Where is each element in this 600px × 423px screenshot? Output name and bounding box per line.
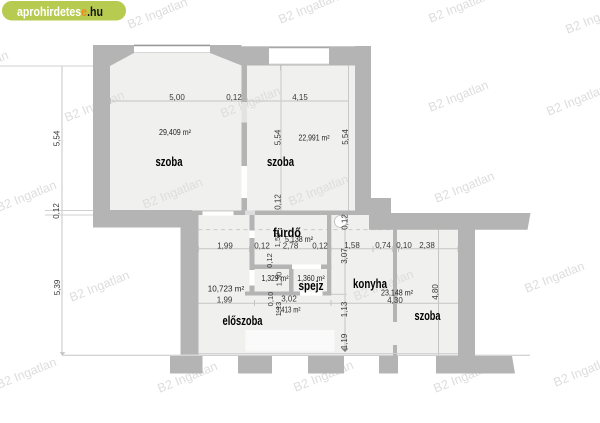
svg-text:22,991 m²: 22,991 m² — [299, 134, 330, 143]
svg-text:szoba: szoba — [267, 154, 295, 169]
svg-text:29,409 m²: 29,409 m² — [159, 128, 191, 137]
svg-text:4,15: 4,15 — [292, 93, 308, 102]
svg-text:3,07: 3,07 — [340, 248, 349, 264]
svg-text:5,54: 5,54 — [341, 129, 350, 145]
svg-text:4,80: 4,80 — [431, 284, 440, 300]
svg-text:konyha: konyha — [353, 276, 388, 291]
svg-text:5,54: 5,54 — [274, 129, 283, 145]
svg-text:aprohirdetese.hu: aprohirdetese.hu — [17, 5, 103, 19]
svg-text:5,39: 5,39 — [53, 279, 62, 295]
svg-text:0,12: 0,12 — [52, 203, 61, 219]
svg-text:0,12: 0,12 — [341, 214, 350, 230]
svg-text:1,58: 1,58 — [344, 241, 360, 250]
svg-text:1,13: 1,13 — [340, 301, 349, 317]
svg-text:0,12: 0,12 — [254, 241, 270, 250]
svg-text:5,00: 5,00 — [169, 93, 185, 102]
svg-text:szoba: szoba — [156, 154, 184, 169]
svg-text:0,74: 0,74 — [375, 241, 391, 250]
svg-text:2,38: 2,38 — [419, 241, 435, 250]
svg-text:3,413 m²: 3,413 m² — [276, 306, 301, 315]
svg-text:0,10: 0,10 — [396, 241, 412, 250]
svg-text:1,99: 1,99 — [217, 241, 233, 250]
svg-text:1,329 m²: 1,329 m² — [262, 274, 289, 283]
svg-text:fürdő: fürdő — [273, 226, 301, 240]
svg-text:0,12: 0,12 — [274, 194, 283, 210]
svg-text:0,12: 0,12 — [265, 253, 274, 268]
svg-text:10,723 m²: 10,723 m² — [208, 285, 245, 294]
svg-text:előszoba: előszoba — [223, 313, 264, 328]
svg-text:szoba: szoba — [415, 308, 442, 323]
svg-text:1,19: 1,19 — [340, 333, 349, 349]
svg-text:0,12: 0,12 — [312, 241, 328, 250]
svg-text:3,02: 3,02 — [281, 295, 297, 304]
svg-text:spejz: spejz — [299, 278, 324, 293]
svg-text:5,54: 5,54 — [53, 130, 62, 146]
svg-text:0,12: 0,12 — [226, 93, 242, 102]
svg-text:1,99: 1,99 — [217, 295, 233, 304]
